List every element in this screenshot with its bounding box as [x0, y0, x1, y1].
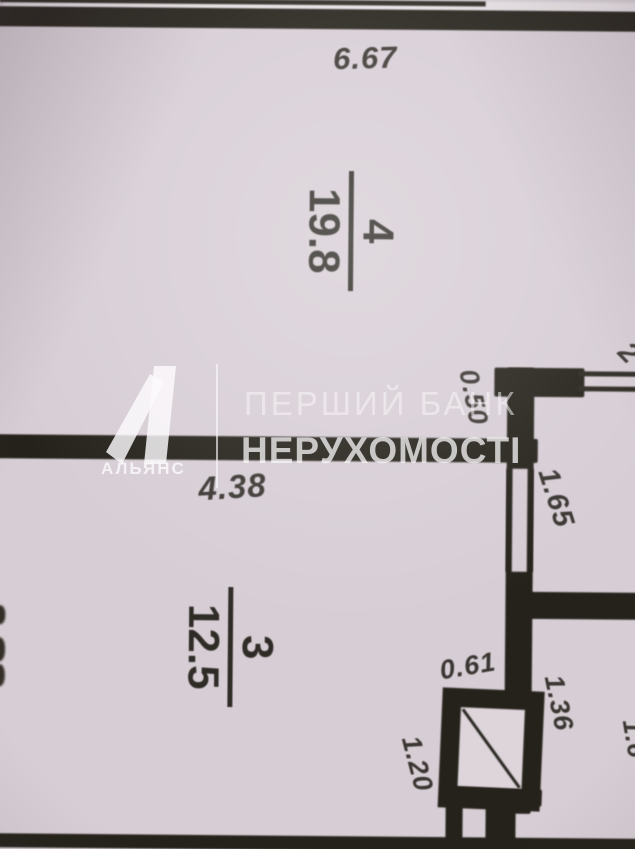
duct-diagonal-icon [457, 707, 524, 790]
left-edge-dimension-fragment [0, 605, 5, 624]
left-edge-dimension-fragment [0, 664, 5, 686]
window-right-vertical [506, 469, 534, 572]
window-upper-right-line2 [578, 386, 635, 392]
room4-label: 4 19.8 [302, 175, 399, 288]
dim-duct-height: 1.20 [395, 733, 439, 796]
dim-upper-niche: 1.65 [531, 464, 581, 532]
room4-area: 19.8 [303, 188, 346, 274]
room3-number: 3 [236, 635, 278, 660]
dim-duct-width: 0.61 [437, 646, 498, 686]
dim-top-width: 6.67 [333, 40, 398, 78]
window-upper-right-line1 [578, 371, 635, 377]
left-edge-dimension-fragment [0, 637, 5, 661]
room3-area: 12.5 [182, 604, 225, 690]
floorplan-photo: 4 19.8 3 12.5 6.67 4.38 0.50 1.65 2 0.61… [0, 0, 635, 849]
wall-middle [0, 434, 538, 463]
dim-right-edge-partial: 1.6 [616, 717, 635, 761]
wall-stub-right [485, 800, 515, 842]
wall-bottom [0, 833, 635, 849]
wall-upper-right [494, 368, 584, 398]
room4-fraction-bar [348, 171, 354, 292]
room3-label: 3 12.5 [182, 591, 279, 704]
room3-fraction-bar [228, 587, 234, 708]
wall-mid-right [525, 592, 635, 620]
wall-stub-left [445, 800, 462, 842]
wall-top [0, 6, 635, 32]
dim-wall-stub: 0.50 [452, 367, 494, 429]
dim-lower-niche: 1.36 [538, 672, 580, 734]
duct-box-inner [457, 707, 524, 790]
floorplan-drawing: 4 19.8 3 12.5 6.67 4.38 0.50 1.65 2 0.61… [0, 0, 635, 849]
dim-top-right-partial: 2 [611, 336, 635, 371]
room4-number: 4 [357, 219, 399, 244]
dim-room3-width: 4.38 [197, 466, 267, 508]
